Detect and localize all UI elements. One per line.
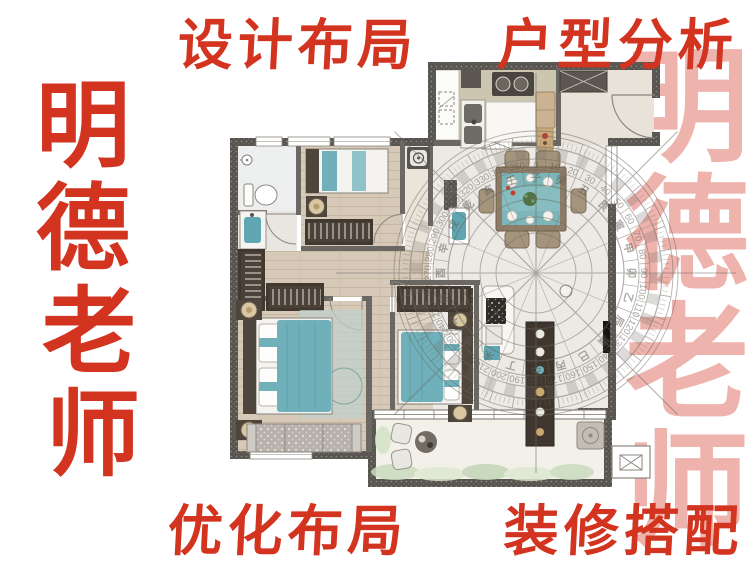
svg-text:10: 10 — [549, 161, 561, 174]
top-title-part2: 户型分析 — [496, 0, 740, 80]
fridge-icon — [536, 92, 555, 128]
bed1 — [306, 149, 388, 193]
poster: 明德老师 — [0, 0, 750, 563]
floor-lamp-icon — [560, 285, 572, 297]
washing-machine-icon — [407, 147, 430, 169]
bedroom-bench — [247, 424, 361, 452]
nightstand-lamp — [236, 300, 262, 320]
bedside-lamp — [306, 196, 327, 217]
vanity-sink — [240, 211, 266, 249]
top-title: 设计布局 户型分析 — [176, 0, 740, 80]
exterior-utility-box — [612, 446, 650, 478]
svg-text:90: 90 — [638, 268, 649, 279]
svg-text:270: 270 — [423, 265, 434, 281]
svg-text:甲: 甲 — [621, 242, 635, 255]
master-bed — [243, 318, 332, 414]
nightstand-lamp — [448, 405, 472, 422]
double-sink-icon — [461, 100, 485, 148]
svg-text:午: 午 — [530, 362, 541, 375]
left-brand-text: 明德老师 — [30, 74, 136, 486]
wardrobe1 — [305, 219, 373, 245]
bottom-title-part1: 优化布局 — [166, 486, 410, 566]
watermark-char: 明 — [30, 74, 136, 177]
svg-text:卯: 卯 — [625, 268, 638, 279]
balcony-table — [415, 431, 437, 453]
svg-text:180: 180 — [528, 375, 544, 386]
svg-text:100: 100 — [635, 283, 649, 301]
svg-text:乙: 乙 — [620, 291, 634, 305]
watermark-char: 老 — [36, 280, 142, 383]
balcony-sliding-door — [374, 410, 606, 419]
watermark-char: 德 — [30, 177, 136, 280]
svg-text:子: 子 — [531, 172, 542, 184]
ac-shaft — [434, 70, 459, 140]
svg-text:0: 0 — [533, 160, 538, 171]
watermark-char: 师 — [40, 383, 146, 486]
svg-text:酉: 酉 — [435, 267, 447, 278]
fengshui-compass: 0102030405060708090100110120130140150160… — [336, 73, 736, 473]
red-flowers — [511, 191, 516, 196]
bottom-title: 优化布局 装修搭配 — [166, 486, 746, 566]
corridor-floor — [372, 297, 390, 412]
bottom-title-part2: 装修搭配 — [502, 486, 746, 566]
master-bedroom — [236, 300, 364, 452]
toilet-icon — [244, 184, 277, 206]
svg-text:80: 80 — [636, 248, 649, 260]
top-title-part1: 设计布局 — [176, 0, 420, 80]
ac-unit-icon — [577, 422, 604, 449]
